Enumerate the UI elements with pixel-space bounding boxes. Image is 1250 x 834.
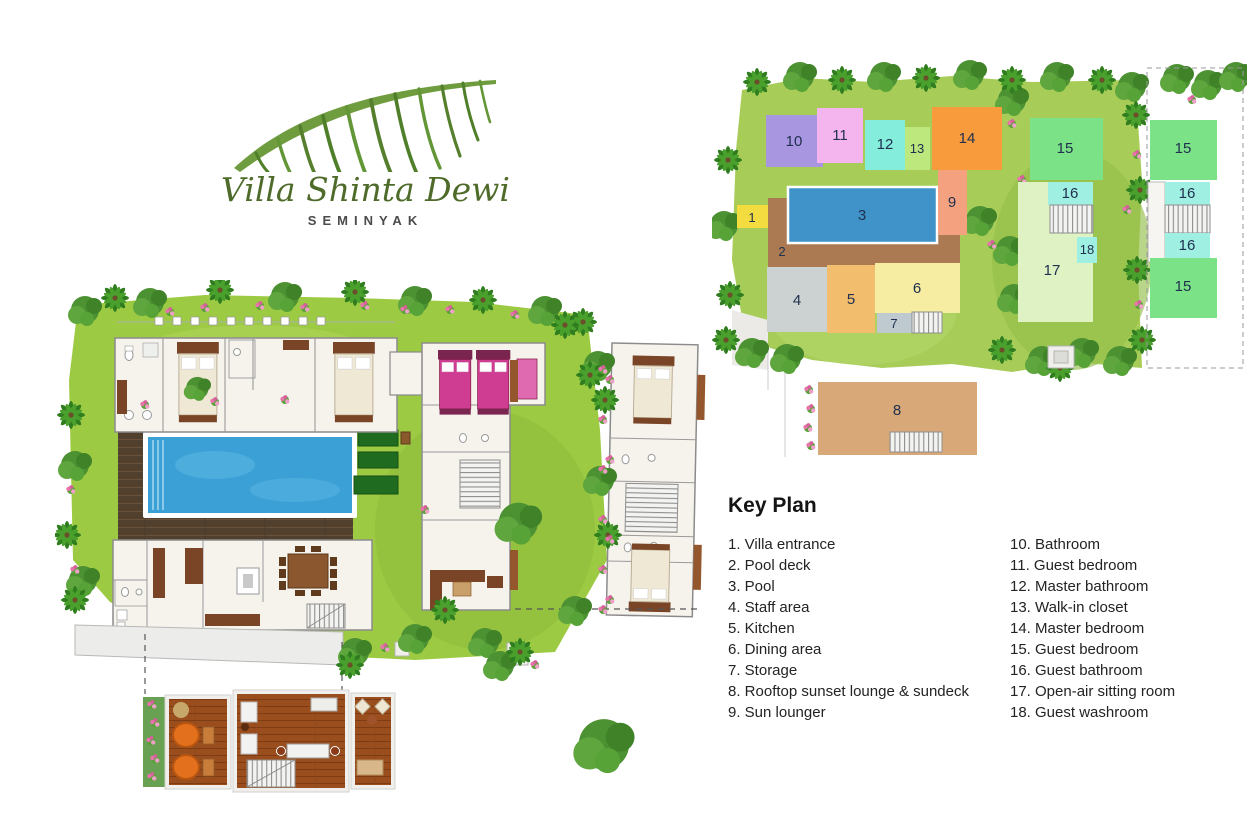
pink-bed — [476, 350, 510, 415]
legend-item: 10. Bathroom — [1010, 534, 1175, 555]
daybed — [517, 359, 537, 399]
legend-item: 9. Sun lounger — [728, 702, 1010, 723]
key-plan-map: 1 2 3 4 5 6 7 8 9 10 11 12 13 14 15 16 1… — [712, 60, 1247, 495]
sofa — [430, 570, 485, 582]
coffee-table — [453, 582, 471, 596]
logo-title: Villa Shinta Dewi — [218, 173, 513, 206]
room-number: 11 — [832, 127, 848, 144]
villa-logo: Villa Shinta Dewi SEMINYAK — [218, 60, 513, 228]
room-number: 4 — [793, 292, 801, 309]
bed — [333, 342, 375, 422]
round-table — [367, 715, 377, 725]
rooftop-plan — [143, 690, 395, 792]
logo-subtitle: SEMINYAK — [218, 213, 513, 228]
cabinet — [185, 548, 203, 584]
cabinet — [153, 548, 165, 598]
pink-bed — [438, 350, 472, 415]
rooftop-lounge-deck — [165, 695, 231, 789]
legend-item: 7. Storage — [728, 660, 1010, 681]
legend-item: 3. Pool — [728, 576, 1010, 597]
bar-bench — [287, 744, 329, 758]
toilet — [460, 434, 467, 443]
room-number: 8 — [893, 402, 901, 419]
keyplan-guest-tower — [1147, 68, 1243, 368]
dining-set — [279, 546, 337, 596]
media-console — [205, 614, 260, 626]
wardrobe — [283, 340, 309, 350]
room-number: 15 — [1175, 140, 1192, 157]
legend-item: 5. Kitchen — [728, 618, 1010, 639]
guest-tower-ground-plan — [606, 343, 706, 617]
legend-item: 12. Master bathroom — [1010, 576, 1175, 597]
rooftop-flower-border — [143, 697, 165, 787]
stairs-icon — [460, 460, 500, 508]
rooftop-side-deck — [351, 693, 395, 789]
stairs-icon — [1165, 205, 1210, 233]
legend-item: 11. Guest bedroom — [1010, 555, 1175, 576]
legend-column-right: 10. Bathroom 11. Guest bedroom 12. Maste… — [1010, 534, 1175, 723]
room-number: 7 — [890, 316, 897, 331]
bed — [629, 543, 672, 612]
room-number: 12 — [877, 136, 894, 153]
driveway — [75, 625, 343, 665]
room-number: 5 — [847, 291, 855, 308]
balcony — [510, 550, 518, 590]
balcony — [693, 545, 702, 590]
living-dining-band — [113, 540, 372, 630]
stairs-icon — [307, 604, 345, 628]
room-number: 13 — [910, 141, 924, 156]
legend-item: 4. Staff area — [728, 597, 1010, 618]
tower-corridor — [1148, 182, 1165, 262]
stairs-icon — [912, 312, 942, 333]
room-number: 14 — [959, 130, 976, 147]
legend-item: 1. Villa entrance — [728, 534, 1010, 555]
mat — [241, 702, 257, 722]
wardrobe — [117, 380, 127, 414]
key-plan-legend: Key Plan 1. Villa entrance 2. Pool deck … — [728, 494, 1208, 723]
swimming-pool — [143, 432, 357, 518]
garden-fountain — [1048, 346, 1074, 368]
main-floor-plan — [55, 280, 710, 832]
room-number: 15 — [1175, 278, 1192, 295]
stairs-icon — [890, 432, 942, 452]
lamp — [331, 747, 340, 756]
armchair — [487, 576, 503, 588]
legend-title: Key Plan — [728, 494, 1208, 518]
legend-column-left: 1. Villa entrance 2. Pool deck 3. Pool 4… — [728, 534, 1010, 723]
room-number: 16 — [1062, 185, 1079, 202]
room-number: 10 — [786, 133, 803, 150]
legend-item: 6. Dining area — [728, 639, 1010, 660]
room-number: 6 — [913, 280, 921, 297]
counter — [311, 698, 337, 711]
legend-item: 14. Master bedroom — [1010, 618, 1175, 639]
legend-item: 18. Guest washroom — [1010, 702, 1175, 723]
legend-item: 2. Pool deck — [728, 555, 1010, 576]
legend-item: 15. Guest bedroom — [1010, 639, 1175, 660]
lamp — [277, 747, 286, 756]
room-number: 1 — [748, 210, 755, 225]
side-table — [203, 727, 214, 744]
room-number: 3 — [858, 207, 866, 224]
stairs-icon — [625, 483, 678, 532]
side-table — [203, 759, 214, 776]
room-number: 15 — [1057, 140, 1074, 157]
bean-bag — [173, 755, 199, 779]
legend-item: 13. Walk-in closet — [1010, 597, 1175, 618]
room-number: 16 — [1179, 237, 1196, 254]
bench — [357, 760, 383, 775]
rooftop-sundeck-main — [233, 690, 349, 792]
room-number: 9 — [948, 194, 956, 211]
legend-item: 17. Open-air sitting room — [1010, 681, 1175, 702]
bedroom-wing-north — [115, 338, 397, 432]
mat — [241, 734, 257, 754]
sink — [482, 435, 489, 442]
room-number: 16 — [1179, 185, 1196, 202]
keyplan-rooftop-block — [803, 382, 977, 455]
room-number: 2 — [778, 244, 785, 259]
room-number: 18 — [1080, 242, 1094, 257]
stairs-icon — [247, 760, 295, 787]
balcony — [696, 375, 705, 420]
bean-bag — [173, 723, 199, 747]
palm-frond-logo-icon — [218, 60, 513, 172]
balcony — [510, 360, 518, 402]
legend-item: 16. Guest bathroom — [1010, 660, 1175, 681]
round-mat — [173, 702, 189, 718]
legend-item: 8. Rooftop sunset lounge & sundeck — [728, 681, 1010, 702]
villa-floorplan-page: Villa Shinta Dewi SEMINYAK — [0, 0, 1250, 834]
room-number: 17 — [1044, 262, 1061, 279]
stairs-icon — [1050, 205, 1093, 233]
bed — [631, 355, 674, 424]
